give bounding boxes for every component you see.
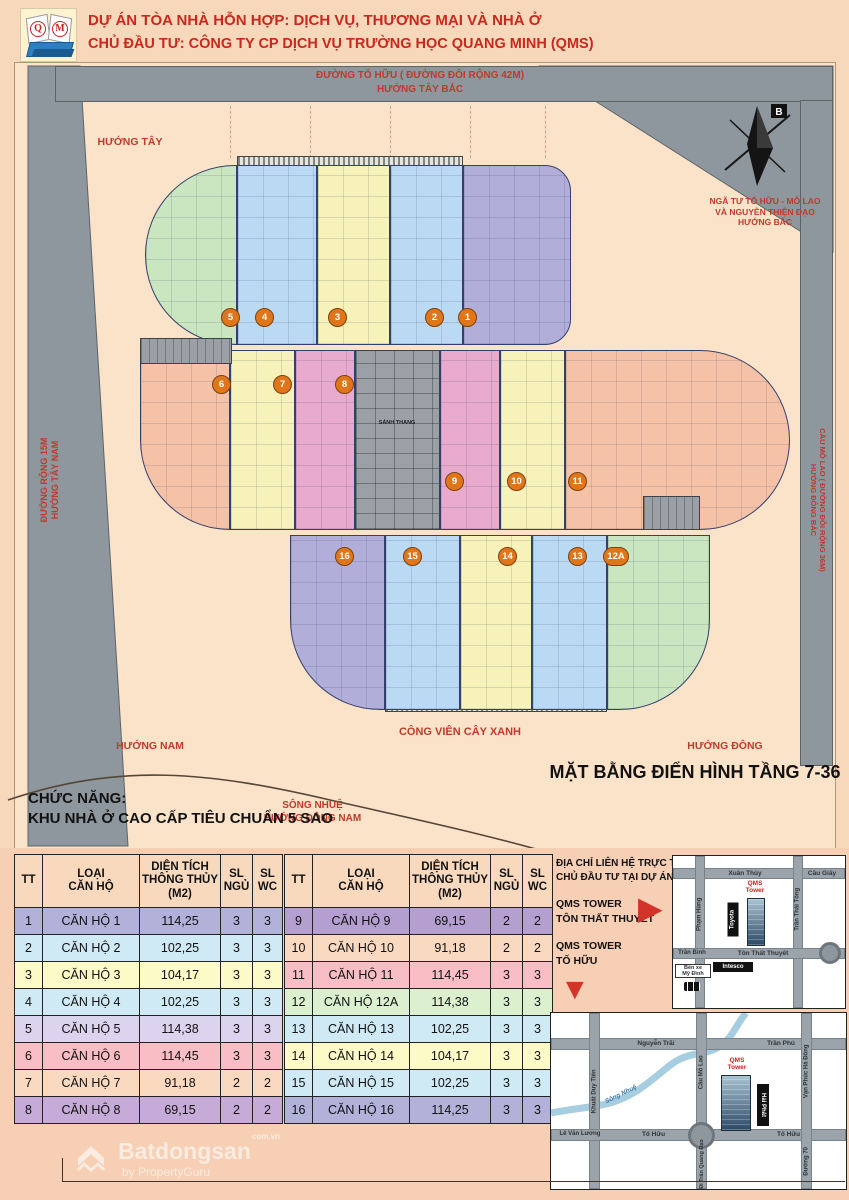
compass-caption: NGÃ TƯ TỐ HỮU - MỖ LAO VÀ NGUYỄN THIỆN Đ… xyxy=(685,196,845,228)
park-label: CÔNG VIÊN CÂY XANH xyxy=(370,726,550,740)
road-west-label: ĐƯỜNG RỘNG 15M HƯỚNG TÂY NAM xyxy=(39,415,65,545)
street-label-tran-binh: Trần Bình xyxy=(674,950,710,957)
road-east-label-1: CẦU MỖ LAO ( ĐƯỜNG ĐÔI RỘNG 36M) xyxy=(818,415,827,585)
table-row: 9CĂN HỘ 969,1522 xyxy=(285,908,553,935)
compass-caption-3: HƯỚNG BẮC xyxy=(685,217,845,228)
table-row: 7CĂN HỘ 791,1822 xyxy=(15,1070,283,1097)
dir-east-label: HƯỚNG ĐÔNG xyxy=(670,740,780,753)
bus-station-label: Bến xe Mỹ Đình xyxy=(675,964,711,978)
col-header-bed: SL NGỦ xyxy=(491,855,523,908)
frame-line-left xyxy=(62,1158,63,1181)
elevator-core xyxy=(355,350,440,530)
unit-marker-11: 11 xyxy=(568,472,587,491)
col-header-tt: TT xyxy=(285,855,313,908)
table-row: 1CĂN HỘ 1114,2533 xyxy=(15,908,283,935)
col-header-tt: TT xyxy=(15,855,43,908)
function-value: KHU NHÀ Ở CAO CẤP TIÊU CHUẨN 5 SAO xyxy=(28,810,333,827)
street-label-van-phuc-ha-dong: Vạn Phúc Hà Đông xyxy=(804,1036,811,1106)
unit-marker-6: 6 xyxy=(212,375,231,394)
unit-marker-9: 9 xyxy=(445,472,464,491)
street-label-tran-thai-tong: Trần Thái Tông xyxy=(795,879,802,939)
arrow-right-icon: ▶ xyxy=(638,892,663,924)
arrow-down-icon: ▼ xyxy=(560,975,590,1005)
intesco-label: Intesco xyxy=(713,962,753,972)
axis-tick xyxy=(470,106,471,158)
roundabout xyxy=(819,942,841,964)
compass-icon: B xyxy=(715,100,800,192)
table-row: 4CĂN HỘ 4102,2533 xyxy=(15,989,283,1016)
apartment-unit-15 xyxy=(385,535,460,710)
table-header-row: TT LOẠI CĂN HỘ DIỆN TÍCH THÔNG THỦY (M2)… xyxy=(285,855,553,908)
location-map-to-huu: Nguyễn Trãi Trần Phú Khuất Duy Tiến Cầu … xyxy=(550,1012,847,1190)
street-label-ton-that-thuyet: Tôn Thất Thuyết xyxy=(728,950,798,957)
axis-tick xyxy=(310,106,311,158)
unit-marker-8: 8 xyxy=(335,375,354,394)
dir-west-label: HƯỚNG TÂY xyxy=(80,136,180,149)
street-label-cau-mo-lao: Cầu Mỗ Lao xyxy=(699,1042,706,1102)
col-header-area: DIỆN TÍCH THÔNG THỦY (M2) xyxy=(140,855,221,908)
table-row: 16CĂN HỘ 16114,2533 xyxy=(285,1097,553,1124)
road-east-label-2: HƯỚNG ĐÔNG BẮC xyxy=(808,415,817,585)
col-header-wc: SL WC xyxy=(253,855,283,908)
site1-name: QMS TOWER xyxy=(556,898,622,910)
site2-name: QMS TOWER xyxy=(556,940,622,952)
compass-caption-2: VÀ NGUYỄN THIỆN ĐẠO xyxy=(685,207,845,218)
function-label: CHỨC NĂNG: xyxy=(28,790,126,807)
bus-icon xyxy=(684,982,700,991)
table-row: 11CĂN HỘ 11114,4533 xyxy=(285,962,553,989)
street-label-pham-hung: Phạm Hùng xyxy=(697,889,704,939)
apartment-unit-1 xyxy=(463,165,571,345)
unit-marker-13: 13 xyxy=(568,547,587,566)
street-label-nguyen-trai: Nguyễn Trãi xyxy=(621,1040,691,1047)
table-row: 2CĂN HỘ 2102,2533 xyxy=(15,935,283,962)
qms-tower-label: QMS Tower xyxy=(733,880,777,895)
apartment-table-right: TT LOẠI CĂN HỘ DIỆN TÍCH THÔNG THỦY (M2)… xyxy=(284,854,553,1124)
contact-line-2: CHỦ ĐẦU TƯ TẠI DỰ ÁN: xyxy=(556,872,677,883)
street-label-cau-giay: Cầu Giấy xyxy=(801,870,843,877)
street-label-duong-70: Đường 70 xyxy=(804,1136,811,1186)
col-header-bed: SL NGỦ xyxy=(221,855,253,908)
col-header-type: LOẠI CĂN HỘ xyxy=(313,855,410,908)
table-row: 12CĂN HỘ 12A114,3833 xyxy=(285,989,553,1016)
apartment-unit-4 xyxy=(237,165,317,345)
table-row: 6CĂN HỘ 6114,4533 xyxy=(15,1043,283,1070)
axis-tick xyxy=(230,106,231,158)
street-label-xuan-thuy: Xuân Thủy xyxy=(715,870,775,877)
col-header-area: DIỆN TÍCH THÔNG THỦY (M2) xyxy=(410,855,491,908)
table-row: 10CĂN HỘ 1091,1822 xyxy=(285,935,553,962)
table-header-row: TT LOẠI CĂN HỘ DIỆN TÍCH THÔNG THỦY (M2)… xyxy=(15,855,283,908)
street-label-khuat-duy-tien: Khuất Duy Tiến xyxy=(592,1056,599,1126)
unit-marker-5: 5 xyxy=(221,308,240,327)
street-label-tran-phu: Trần Phú xyxy=(751,1040,811,1047)
table-row: 15CĂN HỘ 15102,2533 xyxy=(285,1070,553,1097)
dir-south-label: HƯỚNG NAM xyxy=(95,740,205,753)
unit-marker-2: 2 xyxy=(425,308,444,327)
unit-marker-3: 3 xyxy=(328,308,347,327)
table-row: 8CĂN HỘ 869,1522 xyxy=(15,1097,283,1124)
apartment-unit-10 xyxy=(500,350,565,530)
lobby-label: SẢNH THANG xyxy=(362,420,432,426)
col-header-type: LOẠI CĂN HỘ xyxy=(43,855,140,908)
table-row: 3CĂN HỘ 3104,1733 xyxy=(15,962,283,989)
table-row: 14CĂN HỘ 14104,1733 xyxy=(285,1043,553,1070)
unit-marker-4: 4 xyxy=(255,308,274,327)
road-top-label-1: ĐƯỜNG TỐ HỮU ( ĐƯỜNG ĐÔI RỘNG 42M) xyxy=(150,70,690,83)
stair-block-right xyxy=(643,496,700,530)
apartment-unit-14 xyxy=(460,535,532,710)
unit-marker-16: 16 xyxy=(335,547,354,566)
axis-tick xyxy=(545,106,546,158)
watermark-brand: Batdongsan xyxy=(118,1138,251,1165)
road-east-label: CẦU MỖ LAO ( ĐƯỜNG ĐÔI RỘNG 36M) HƯỚNG Đ… xyxy=(805,415,827,585)
apartment-unit-9 xyxy=(440,350,500,530)
unit-marker-14: 14 xyxy=(498,547,517,566)
unit-marker-15: 15 xyxy=(403,547,422,566)
axis-tick xyxy=(390,106,391,158)
road-west-label-2: HƯỚNG TÂY NAM xyxy=(50,415,61,545)
compass-caption-1: NGÃ TƯ TỐ HỮU - MỖ LAO xyxy=(685,196,845,207)
plan-title: MẶT BẰNG ĐIỂN HÌNH TẦNG 7-36 xyxy=(545,762,845,783)
compass-north-letter: B xyxy=(775,107,782,118)
hai-phat-label: Hải Phát xyxy=(757,1084,769,1126)
apartment-table-left: TT LOẠI CĂN HỘ DIỆN TÍCH THÔNG THỦY (M2)… xyxy=(14,854,283,1124)
unit-marker-1: 1 xyxy=(458,308,477,327)
road-top-label-2: HƯỚNG TÂY BẮC xyxy=(150,84,690,97)
unit-marker-12a: 12A xyxy=(603,547,629,566)
table-row: 5CĂN HỘ 5114,3833 xyxy=(15,1016,283,1043)
frame-line-bottom xyxy=(62,1181,845,1182)
qms-tower-building xyxy=(721,1075,751,1131)
qms-tower-building xyxy=(747,898,765,946)
watermark-by: by PropertyGuru xyxy=(122,1165,210,1179)
unit-marker-7: 7 xyxy=(273,375,292,394)
table-row: 13CĂN HỘ 13102,2533 xyxy=(285,1016,553,1043)
col-header-wc: SL WC xyxy=(523,855,553,908)
location-map-ton-that-thuyet: Xuân Thủy Cầu Giấy Phạm Hùng Trần Thái T… xyxy=(672,855,846,1009)
qms-tower-label: QMS Tower xyxy=(716,1057,758,1072)
site2-street: TỐ HỮU xyxy=(556,955,597,967)
street-label-to-huu-west: Tố Hữu xyxy=(631,1131,676,1138)
stair-block-left xyxy=(140,338,232,364)
toyota-label: Toyota xyxy=(728,903,739,937)
watermark-chevron-icon xyxy=(72,1136,110,1174)
watermark-suffix: com.vn xyxy=(252,1132,280,1141)
street-label-le-van-luong: Lê Văn Lương xyxy=(552,1131,608,1138)
flyer-page: Q M DỰ ÁN TÒA NHÀ HỖN HỢP: DỊCH VỤ, THƯƠ… xyxy=(0,0,849,1200)
road-west-label-1: ĐƯỜNG RỘNG 15M xyxy=(39,415,50,545)
unit-marker-10: 10 xyxy=(507,472,526,491)
